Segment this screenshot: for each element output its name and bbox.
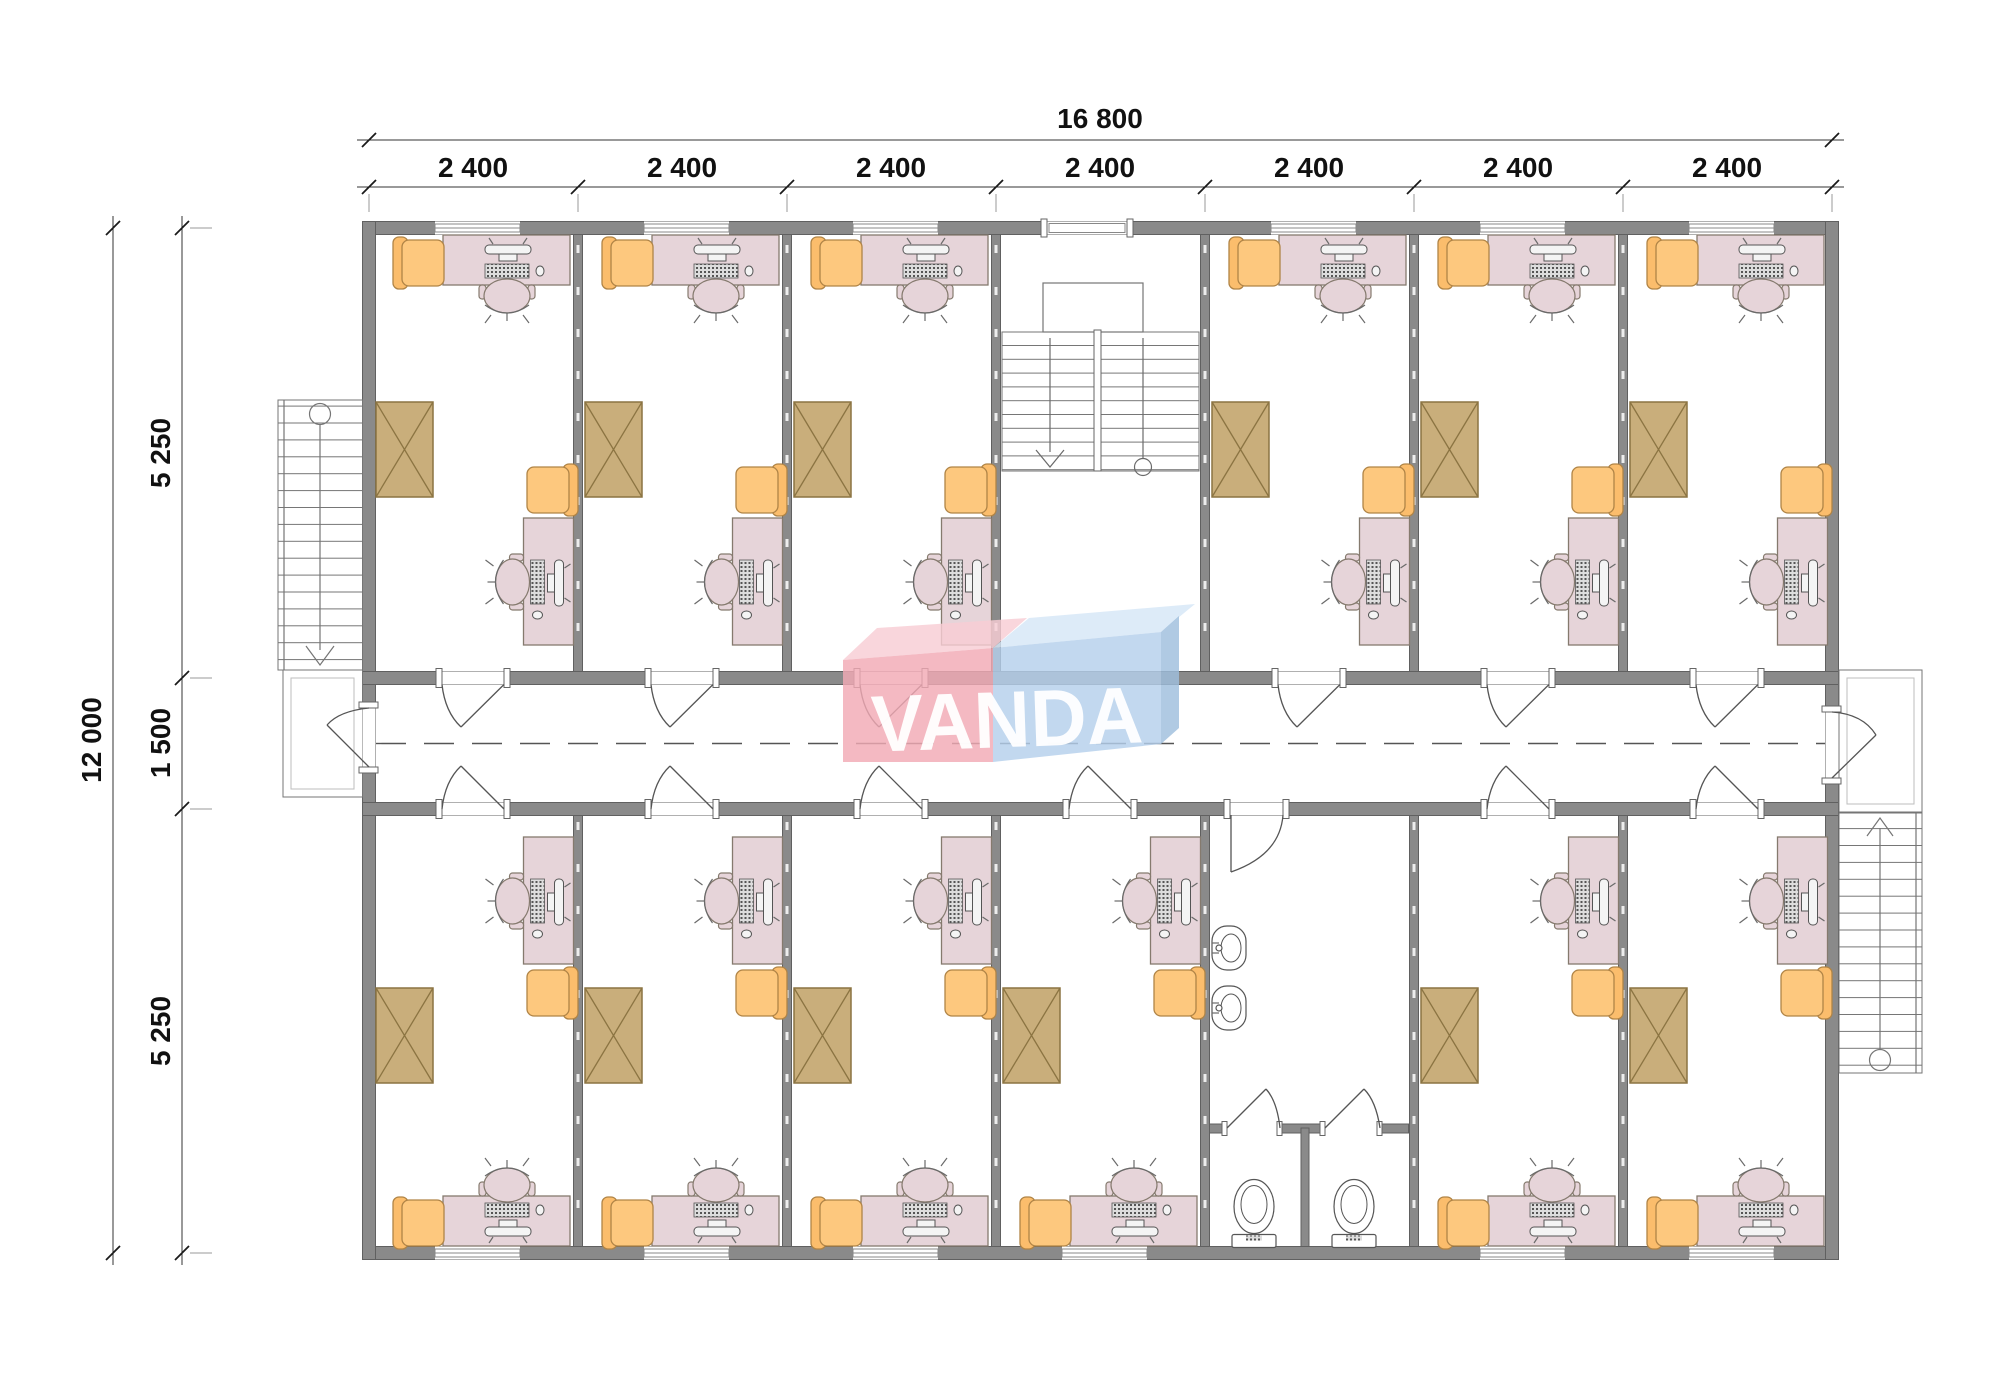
dim-bay: 2 400 <box>438 152 508 183</box>
dim-left-seg: 5 250 <box>145 996 176 1066</box>
dimension-top: 16 800 2 400 2 400 2 400 2 400 2 400 2 4… <box>357 103 1844 212</box>
stair-divider <box>1094 330 1101 471</box>
vanda-logo: VANDA <box>843 604 1195 769</box>
dim-bay: 2 400 <box>1483 152 1553 183</box>
logo-blue-side-face <box>1161 616 1179 744</box>
dim-left-seg: 1 500 <box>145 708 176 778</box>
floor-plan-page: 16 800 2 400 2 400 2 400 2 400 2 400 2 4… <box>0 0 2000 1380</box>
dim-top-overall: 16 800 <box>1057 103 1143 134</box>
stair-landing <box>1839 670 1922 812</box>
logo-text: VANDA <box>870 670 1145 768</box>
stair-landing <box>283 670 363 797</box>
dim-bay: 2 400 <box>1274 152 1344 183</box>
floorplan-svg: 16 800 2 400 2 400 2 400 2 400 2 400 2 4… <box>0 0 2000 1380</box>
dim-bay: 2 400 <box>856 152 926 183</box>
stairs-left <box>278 400 378 797</box>
dim-left-overall: 12 000 <box>76 697 107 783</box>
dim-left-seg: 5 250 <box>145 418 176 488</box>
stall-partition <box>1301 1128 1309 1247</box>
dim-bay: 2 400 <box>1692 152 1762 183</box>
dimension-left: 12 000 5 250 1 500 5 250 <box>76 216 212 1265</box>
dim-bay: 2 400 <box>647 152 717 183</box>
dim-bay: 2 400 <box>1065 152 1135 183</box>
